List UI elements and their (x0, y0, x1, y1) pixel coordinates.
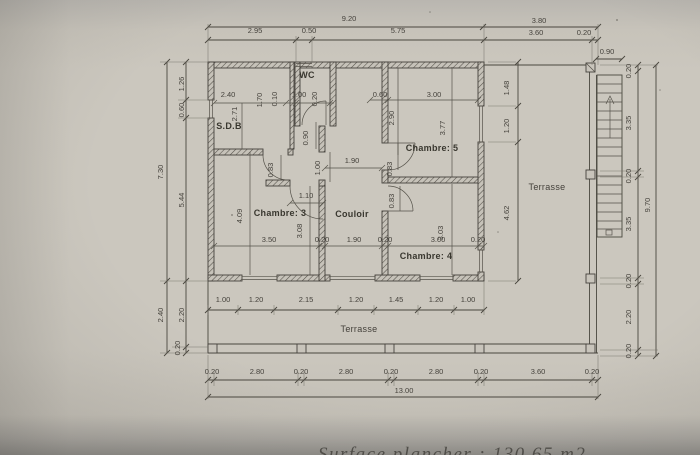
dim-label: 3.80 (532, 16, 547, 25)
dim-label: 1.20 (502, 119, 511, 134)
dim-label: 1.20 (249, 295, 264, 304)
dim-label: 13.00 (395, 386, 414, 395)
dim-label: 0.20 (315, 235, 330, 244)
exterior-walls (208, 62, 484, 281)
dim-label: 1.00 (313, 161, 322, 176)
dim-label: 1.48 (502, 81, 511, 96)
dim-label: 0.10 (270, 92, 279, 107)
dim-label: 0.20 (624, 64, 633, 79)
dim-label: 1.10 (299, 191, 314, 200)
dim-label: 0.20 (474, 367, 489, 376)
dim-label: 0.20 (624, 344, 633, 359)
dim-label: 2.15 (299, 295, 314, 304)
dim-label: 5.44 (177, 193, 186, 208)
dim-label: 0.90 (600, 47, 615, 56)
dim-label: 3.00 (427, 90, 442, 99)
dim-label: 5.75 (391, 26, 406, 35)
dim-label: 1.00 (292, 90, 307, 99)
dim-label: 9.20 (342, 14, 357, 23)
dim-label: 2.20 (177, 308, 186, 323)
dim-label: 3.60 (529, 28, 544, 37)
dim-label: 3.08 (295, 224, 304, 239)
room-label: WC (299, 70, 315, 80)
footer-caption: Surface plancher : 130,65 m2 (318, 444, 586, 455)
dim-label: 0.60 (373, 90, 388, 99)
stair-start-mark (606, 230, 612, 235)
dim-label: 3.77 (438, 121, 447, 136)
room-label: Chambre: 5 (406, 143, 459, 153)
dim-label: 4.09 (235, 209, 244, 224)
dim-label: 2.40 (156, 308, 165, 323)
dim-label: 1.20 (349, 295, 364, 304)
dim-label: 2.80 (339, 367, 354, 376)
dim-label: 0.20 (384, 367, 399, 376)
dim-label: 0.50 (302, 26, 317, 35)
staircase (597, 75, 622, 237)
dim-label: 2.80 (429, 367, 444, 376)
dim-label: 0.20 (294, 367, 309, 376)
dim-label: 0.20 (173, 341, 182, 356)
room-label: Couloir (335, 209, 369, 219)
room-label: Chambre: 3 (254, 208, 307, 218)
room-label: Terrasse (341, 324, 378, 334)
dim-label: 0.83 (385, 162, 394, 177)
dim-label: 2.80 (250, 367, 265, 376)
dim-label: 3.60 (531, 367, 546, 376)
dim-label: 1.70 (255, 93, 264, 108)
dim-label: 1.45 (389, 295, 404, 304)
floor-plan-canvas: 9.202.950.505.753.803.600.200.902.401.70… (0, 0, 700, 455)
dim-label: 3.35 (624, 116, 633, 131)
dim-label: 1.90 (345, 156, 360, 165)
dim-label: 0.90 (301, 131, 310, 146)
dim-label: 2.20 (624, 310, 633, 325)
dim-label: 0.20 (585, 367, 600, 376)
dim-label: 0.83 (387, 194, 396, 209)
dim-label: 0.20 (624, 169, 633, 184)
stair-direction-arrow (606, 96, 614, 138)
dim-label: 2.95 (248, 26, 263, 35)
room-label: Terrasse (529, 182, 566, 192)
footer-caption-text: Surface plancher : 130,65 m2 (318, 444, 586, 455)
windows (208, 64, 484, 282)
dim-label: 1.00 (216, 295, 231, 304)
dim-label: 2.90 (387, 111, 396, 126)
dim-label: 0.20 (624, 274, 633, 289)
dim-label: 2.71 (230, 107, 239, 122)
dim-label: 3.50 (262, 235, 277, 244)
dim-label: 9.70 (643, 198, 652, 213)
dim-label: 0.60 (177, 103, 186, 118)
dim-label: 0.20 (577, 28, 592, 37)
room-label: Chambre: 4 (400, 251, 453, 261)
dim-label: 1.00 (461, 295, 476, 304)
dim-label: 1.20 (429, 295, 444, 304)
dim-label: 0.20 (205, 367, 220, 376)
room-label: S.D.B (216, 121, 242, 131)
dim-label: 4.62 (502, 206, 511, 221)
dim-label: 0.20 (378, 235, 393, 244)
dim-label: 7.30 (156, 165, 165, 180)
dim-label: 0.83 (266, 163, 275, 178)
dim-label: 1.26 (177, 77, 186, 92)
dim-label: 3.35 (624, 217, 633, 232)
dim-label: 0.20 (471, 235, 486, 244)
dimension-labels: 9.202.950.505.753.803.600.200.902.401.70… (156, 14, 652, 395)
dim-label: 0.20 (310, 92, 319, 107)
dim-label: 1.90 (347, 235, 362, 244)
dim-label: 3.00 (431, 235, 446, 244)
dim-label: 2.40 (221, 90, 236, 99)
photographed-floor-plan: 9.202.950.505.753.803.600.200.902.401.70… (0, 0, 700, 455)
